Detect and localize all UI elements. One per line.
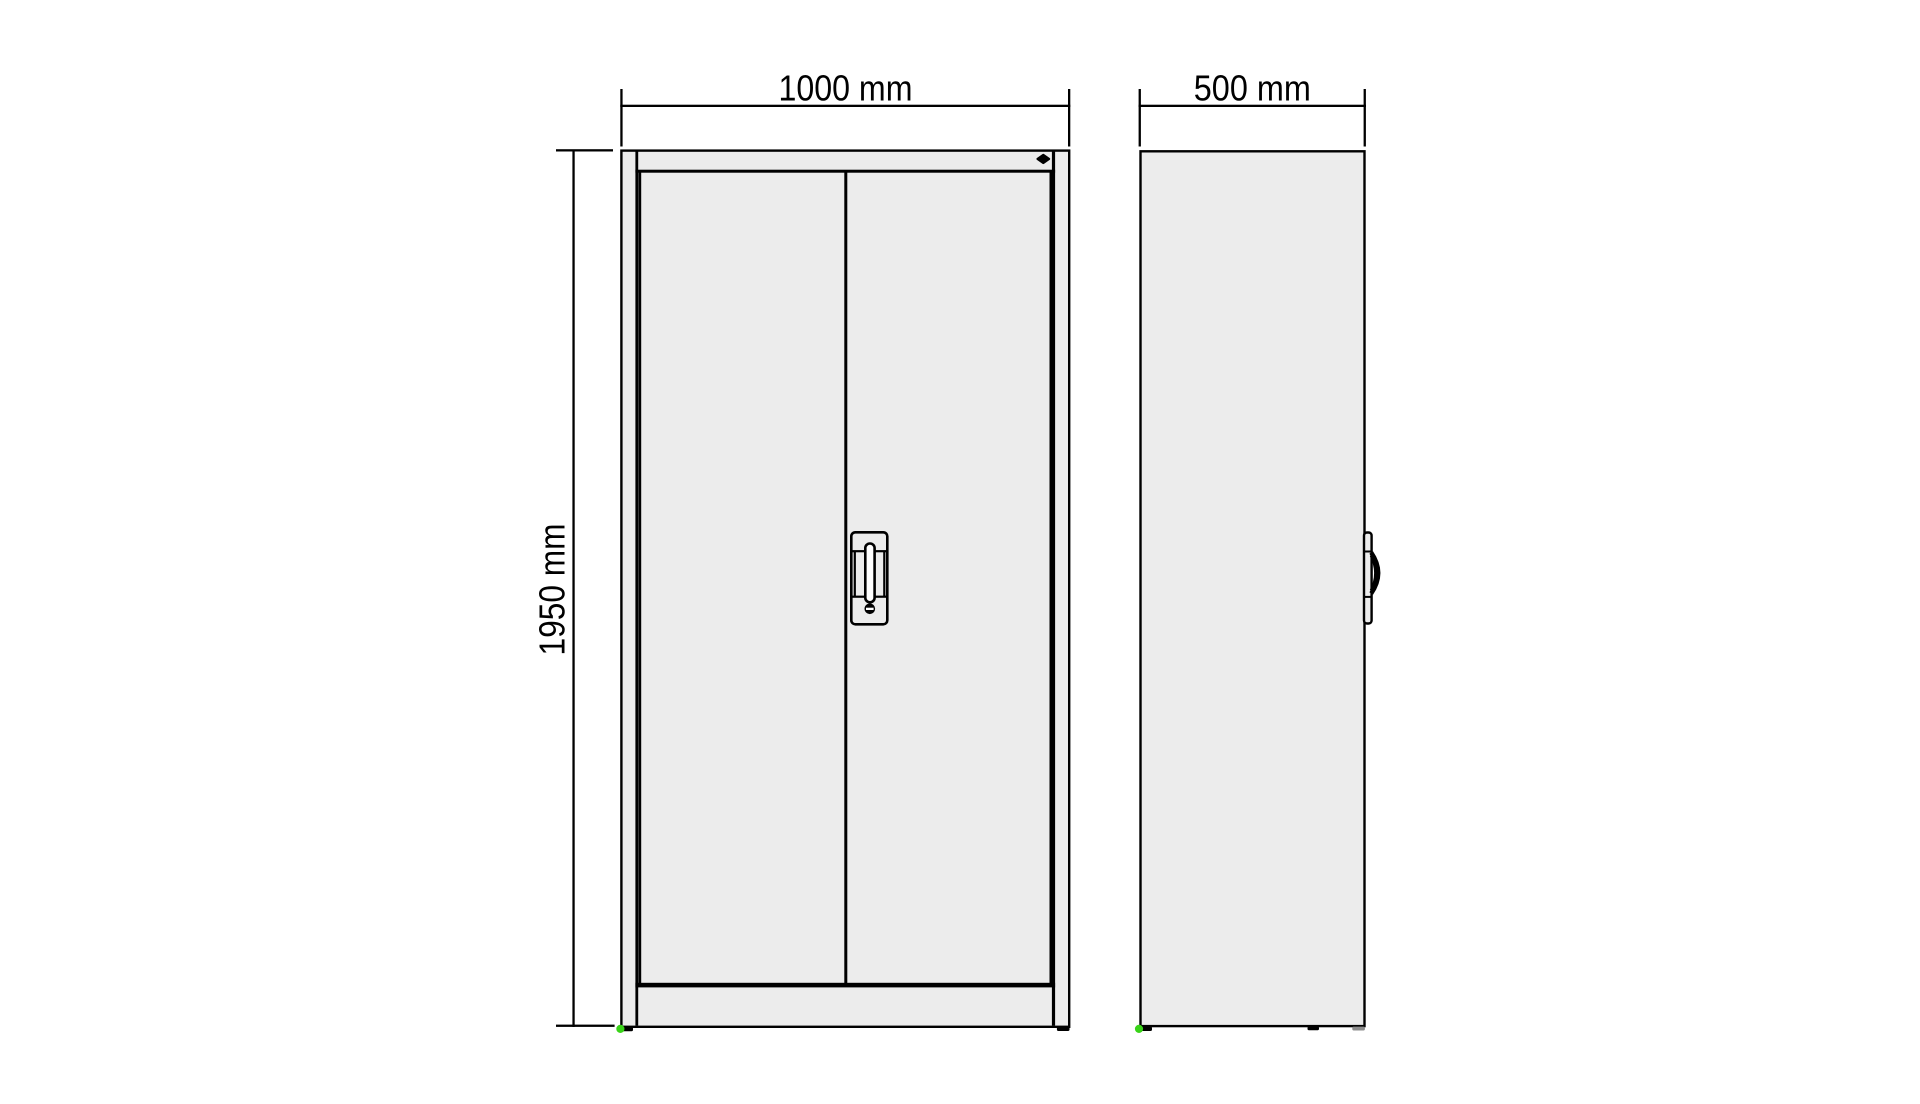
- svg-text:500 mm: 500 mm: [1194, 68, 1311, 109]
- svg-text:1000 mm: 1000 mm: [779, 68, 913, 109]
- svg-text:1950 mm: 1950 mm: [532, 524, 573, 656]
